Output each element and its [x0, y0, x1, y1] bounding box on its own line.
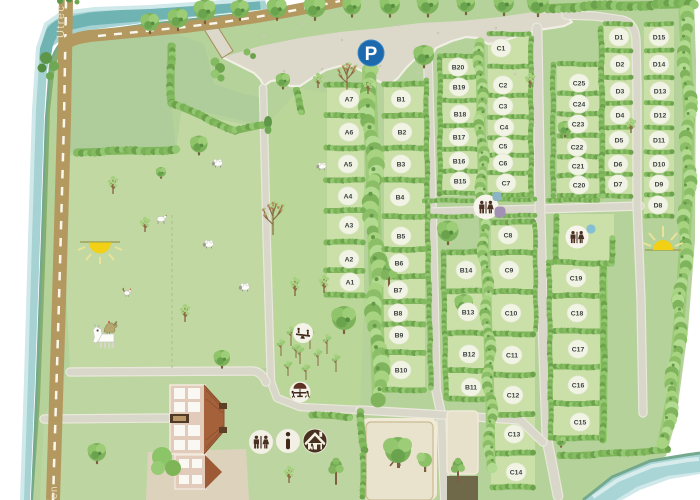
svg-text:C10: C10	[505, 310, 518, 317]
svg-text:B20: B20	[452, 64, 465, 71]
svg-text:B4: B4	[396, 194, 405, 201]
svg-text:B9: B9	[395, 332, 404, 339]
svg-text:C2: C2	[499, 82, 508, 89]
svg-text:C23: C23	[572, 121, 585, 128]
svg-text:C25: C25	[573, 80, 586, 87]
svg-text:D6: D6	[614, 161, 623, 168]
svg-text:D4: D4	[616, 112, 625, 119]
svg-text:C24: C24	[573, 101, 586, 108]
svg-text:C8: C8	[504, 232, 513, 239]
svg-text:C20: C20	[573, 182, 586, 189]
svg-text:A3: A3	[345, 222, 354, 229]
svg-text:C11: C11	[506, 352, 518, 359]
svg-text:A7: A7	[345, 96, 354, 103]
svg-text:D3: D3	[616, 88, 625, 95]
svg-text:C7: C7	[502, 180, 511, 187]
svg-text:D1: D1	[615, 34, 624, 41]
svg-text:D9: D9	[655, 181, 664, 188]
svg-text:B1: B1	[397, 96, 406, 103]
svg-text:C15: C15	[574, 419, 587, 426]
svg-text:C5: C5	[499, 143, 508, 150]
svg-text:D8: D8	[654, 202, 663, 209]
svg-text:C4: C4	[500, 124, 509, 131]
svg-text:en: en	[49, 485, 60, 499]
svg-text:B3: B3	[397, 161, 406, 168]
svg-text:D11: D11	[653, 137, 665, 144]
svg-text:B11: B11	[465, 384, 477, 391]
svg-text:B19: B19	[453, 84, 466, 91]
svg-text:B13: B13	[462, 309, 475, 316]
svg-text:B8: B8	[394, 310, 403, 317]
svg-text:A2: A2	[345, 256, 354, 263]
svg-text:D2: D2	[616, 61, 625, 68]
svg-text:C18: C18	[571, 310, 584, 317]
svg-text:C14: C14	[510, 469, 523, 476]
svg-text:C19: C19	[570, 275, 583, 282]
svg-text:B15: B15	[454, 178, 467, 185]
svg-text:C3: C3	[499, 103, 508, 110]
svg-text:A1: A1	[346, 279, 355, 286]
svg-text:A5: A5	[344, 161, 353, 168]
svg-text:B12: B12	[463, 351, 476, 358]
svg-text:D15: D15	[653, 34, 666, 41]
svg-text:D10: D10	[653, 161, 666, 168]
svg-text:D5: D5	[615, 137, 624, 144]
svg-text:D12: D12	[654, 112, 667, 119]
svg-text:C16: C16	[572, 382, 585, 389]
svg-text:C12: C12	[507, 392, 520, 399]
svg-text:B7: B7	[394, 287, 403, 294]
svg-text:D7: D7	[614, 181, 623, 188]
svg-text:A6: A6	[345, 129, 354, 136]
svg-text:D14: D14	[653, 61, 666, 68]
svg-text:D13: D13	[654, 88, 667, 95]
svg-text:B18: B18	[454, 111, 467, 118]
svg-text:C13: C13	[508, 431, 521, 438]
svg-text:C9: C9	[505, 267, 514, 274]
svg-text:C17: C17	[572, 346, 585, 353]
svg-text:C22: C22	[571, 144, 584, 151]
svg-text:A4: A4	[344, 193, 353, 200]
svg-text:Utrec: Utrec	[55, 5, 67, 38]
svg-text:C21: C21	[572, 163, 585, 170]
svg-text:C1: C1	[497, 45, 506, 52]
svg-text:B17: B17	[453, 134, 466, 141]
svg-text:B10: B10	[395, 367, 408, 374]
svg-text:B2: B2	[398, 129, 407, 136]
svg-text:B16: B16	[453, 158, 466, 165]
svg-text:C6: C6	[499, 160, 508, 167]
svg-text:P: P	[365, 44, 378, 65]
svg-text:B5: B5	[397, 233, 406, 240]
svg-text:B14: B14	[460, 267, 473, 274]
svg-text:B6: B6	[395, 260, 404, 267]
